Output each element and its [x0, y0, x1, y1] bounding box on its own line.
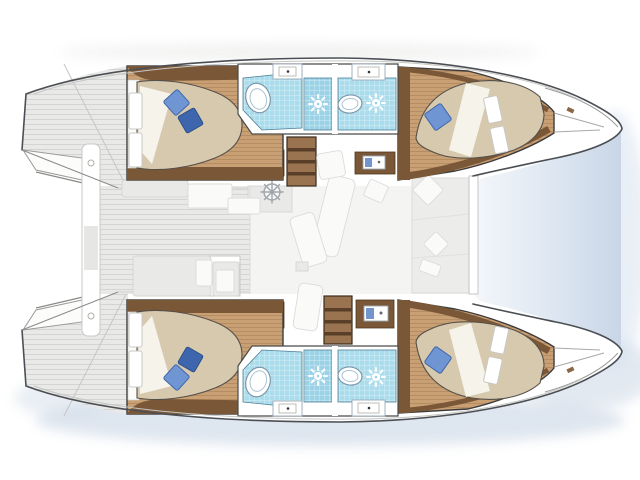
bathrooms-starboard	[238, 346, 398, 416]
bedside-shelf	[129, 351, 142, 387]
shower-sun-icon	[367, 94, 385, 112]
bathrooms-port	[238, 64, 398, 134]
ghost-pillow	[196, 260, 212, 286]
bedside-shelf	[129, 93, 142, 129]
ghost-table	[296, 262, 308, 271]
stairs-starboard	[324, 296, 352, 344]
ghost-bench	[122, 180, 188, 197]
helm-wheel-icon	[261, 181, 283, 203]
shower-sun-icon	[309, 367, 327, 385]
ghost-seat	[228, 198, 260, 214]
shower-sun-icon	[367, 368, 385, 386]
shower-sun-icon	[309, 95, 327, 113]
salon-bulkhead	[469, 176, 478, 294]
stairs-port	[287, 137, 316, 186]
catamaran-floor-plan	[0, 0, 640, 480]
sink	[352, 400, 385, 416]
sink	[273, 401, 302, 416]
ghost-chair-seat	[216, 270, 234, 292]
locker-starboard-forward	[356, 300, 394, 328]
transom-bench-inset	[84, 226, 98, 270]
bedside-shelf	[129, 133, 142, 167]
locker-port-forward	[355, 152, 395, 174]
bedside-shelf	[129, 313, 142, 347]
sink	[352, 64, 385, 80]
ghost-seat	[188, 184, 232, 208]
ghost-seat	[316, 150, 346, 180]
sink	[273, 64, 302, 79]
